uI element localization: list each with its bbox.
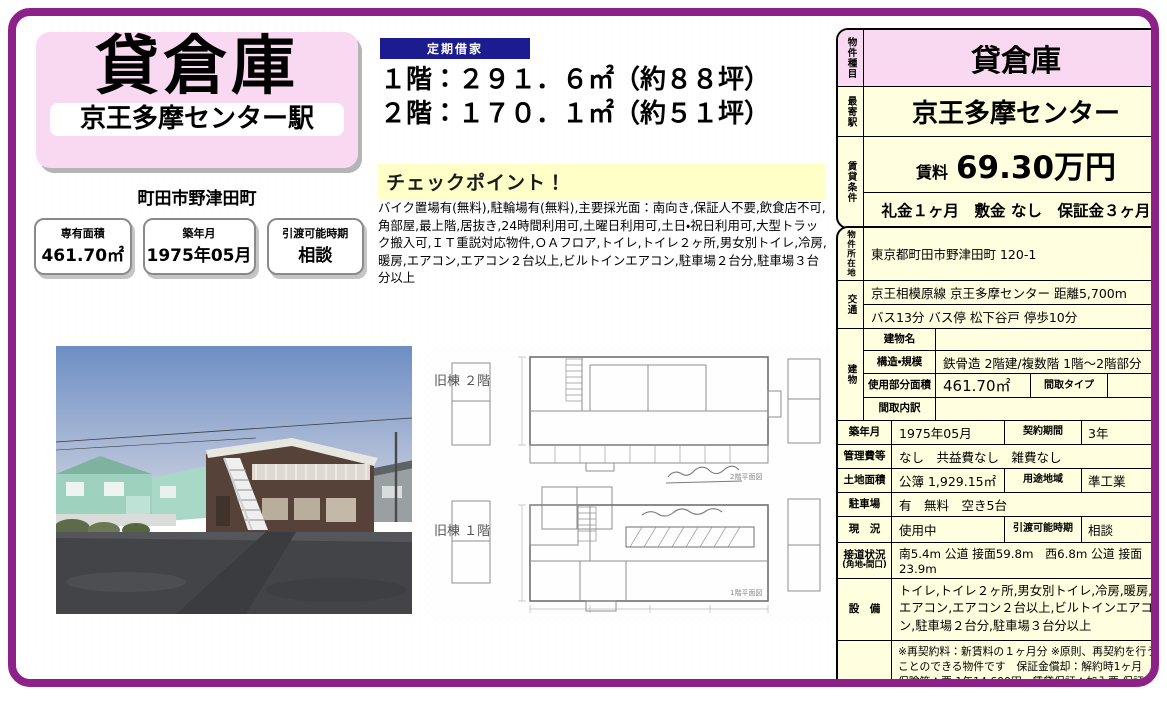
deposit-terms: 礼金１ヶ月 敷金 なし 保証金３ヶ月 <box>864 193 1159 227</box>
plan-label-2f: 旧棟 ２階 <box>434 374 490 389</box>
floor-2-area: ２階：１７０．１㎡（約５１坪） <box>380 98 830 132</box>
zoning-value: 準工業 <box>1082 469 1159 492</box>
structure-value: 鉄骨造 2階建/複数階 1階〜2階部分 <box>936 351 1159 373</box>
checkpoint-heading: チェックポイント！ <box>378 164 826 200</box>
building-name-value <box>936 329 1159 351</box>
used-area-value: 461.70㎡ <box>936 374 1030 397</box>
management-fee-label: 管理費等 <box>838 445 892 468</box>
summary-terms-label: 賃貸条件 <box>838 137 864 227</box>
plan-caption-2f: 2階平面図 <box>730 472 762 481</box>
fixed-term-lease-badge: 定期借家 <box>380 38 530 59</box>
stat-exclusive-area: 専有面積 461.70㎡ <box>34 218 132 275</box>
summary-station-label: 最寄駅 <box>838 87 864 136</box>
built-value: 1975年05月 <box>892 421 1004 444</box>
madori-type-value <box>1108 374 1159 397</box>
summary-station-value: 京王多摩センター <box>864 87 1159 136</box>
equipment-label: 設 備 <box>838 579 892 640</box>
stat-handover: 引渡可能時期 相談 <box>267 218 365 275</box>
rent-value: 69.30万円 <box>956 142 1116 187</box>
access-line-2: バス13分 バス停 松下谷戸 停歩10分 <box>864 305 1159 328</box>
used-area-label: 使用部分面積 <box>864 374 936 397</box>
building-name-label: 建物名 <box>864 329 936 351</box>
rent-line: 賃料 69.30万円 <box>864 137 1159 192</box>
remarks-value: ※再契約料：新賃料の１ヶ月分 ※原則、再契約を行うことのできる物件です 保証金償… <box>892 641 1159 687</box>
plan-label-1f: 旧棟 １階 <box>434 524 490 539</box>
access-label: 交通 <box>838 281 864 328</box>
details-table: 物件所在地 東京都町田市野津田町 120-1 交通 京王相模原線 京王多摩センタ… <box>836 226 1159 687</box>
checkpoint-text: バイク置場有(無料),駐輪場有(無料),主要採光面：南向き,保証人不要,飲食店不… <box>378 199 830 287</box>
road-contact-label-sub: (角地・間口) <box>842 561 887 571</box>
summary-type-label: 物件種目 <box>838 30 864 86</box>
floorplan-image: 旧棟 ２階 旧棟 １階 2階平面図 1階平面図 <box>430 349 830 619</box>
zoning-label: 用途地域 <box>1004 469 1082 492</box>
stat-boxes: 専有面積 461.70㎡ 築年月 1975年05月 引渡可能時期 相談 <box>34 218 364 275</box>
equipment-value: トイレ,トイレ２ヶ所,男女別トイレ,冷房,暖房,エアコン,エアコン２台以上,ビル… <box>892 579 1159 640</box>
exterior-photo <box>56 346 412 614</box>
stat-label: 引渡可能時期 <box>271 225 361 241</box>
nearest-station-banner: 京王多摩センター駅 <box>50 103 344 136</box>
stat-label: 築年月 <box>147 225 252 241</box>
location-label: 物件所在地 <box>838 228 864 280</box>
road-contact-label: 接道状況 (角地・間口) <box>838 543 892 578</box>
stat-value: 相談 <box>271 241 361 266</box>
status-value: 使用中 <box>892 517 1004 542</box>
stat-value: 461.70㎡ <box>38 241 128 266</box>
handover-value: 相談 <box>1082 517 1159 542</box>
parking-label: 駐車場 <box>838 493 892 516</box>
floor-1-area: １階：２９１．６㎡（約８８坪） <box>380 64 830 98</box>
road-contact-value: 南5.4m 公道 接面59.8m 西6.8m 公道 接面23.9m <box>892 543 1159 578</box>
stat-built-date: 築年月 1975年05月 <box>143 218 256 275</box>
remarks-label: 備 考 <box>838 641 892 687</box>
handover-label: 引渡可能時期 <box>1004 517 1082 542</box>
town-name: 町田市野津田町 <box>36 184 358 209</box>
location-value: 東京都町田市野津田町 120-1 <box>864 228 1159 280</box>
rent-label: 賃料 <box>916 159 948 183</box>
property-type-title: 貸倉庫 <box>95 34 299 101</box>
status-label: 現 況 <box>838 517 892 542</box>
structure-label: 構造・規模 <box>864 351 936 373</box>
summary-type-value: 貸倉庫 <box>864 30 1159 86</box>
contract-value: 3年 <box>1082 421 1159 444</box>
floor-area-lines: １階：２９１．６㎡（約８８坪） ２階：１７０．１㎡（約５１坪） <box>380 64 830 132</box>
built-label: 築年月 <box>838 421 892 444</box>
madori-detail-value <box>936 398 1159 420</box>
stat-value: 1975年05月 <box>147 241 252 266</box>
contract-label: 契約期間 <box>1004 421 1082 444</box>
property-type-banner: 貸倉庫 京王多摩センター駅 <box>36 32 358 168</box>
summary-table: 物件種目 貸倉庫 最寄駅 京王多摩センター 賃貸条件 賃料 69.30万円 礼金… <box>836 28 1159 229</box>
access-line-1: 京王相模原線 京王多摩センター 距離5,700m <box>864 281 1159 304</box>
property-flyer-sheet: 貸倉庫 京王多摩センター駅 町田市野津田町 専有面積 461.70㎡ 築年月 1… <box>8 8 1159 687</box>
building-label: 建物 <box>838 329 864 420</box>
land-area-value: 公簿 1,929.15㎡ <box>892 469 1004 492</box>
madori-type-label: 間取タイプ <box>1030 374 1108 397</box>
exterior-photo-image <box>56 346 412 614</box>
stat-label: 専有面積 <box>38 225 128 241</box>
plan-caption-1f: 1階平面図 <box>730 588 762 597</box>
management-fee-value: なし 共益費なし 雑費なし <box>892 445 1159 468</box>
land-area-label: 土地面積 <box>838 469 892 492</box>
madori-detail-label: 間取内訳 <box>864 398 936 420</box>
floorplan-drawing: 旧棟 ２階 旧棟 １階 2階平面図 1階平面図 <box>430 349 830 619</box>
parking-value: 有 無料 空き5台 <box>892 493 1159 516</box>
